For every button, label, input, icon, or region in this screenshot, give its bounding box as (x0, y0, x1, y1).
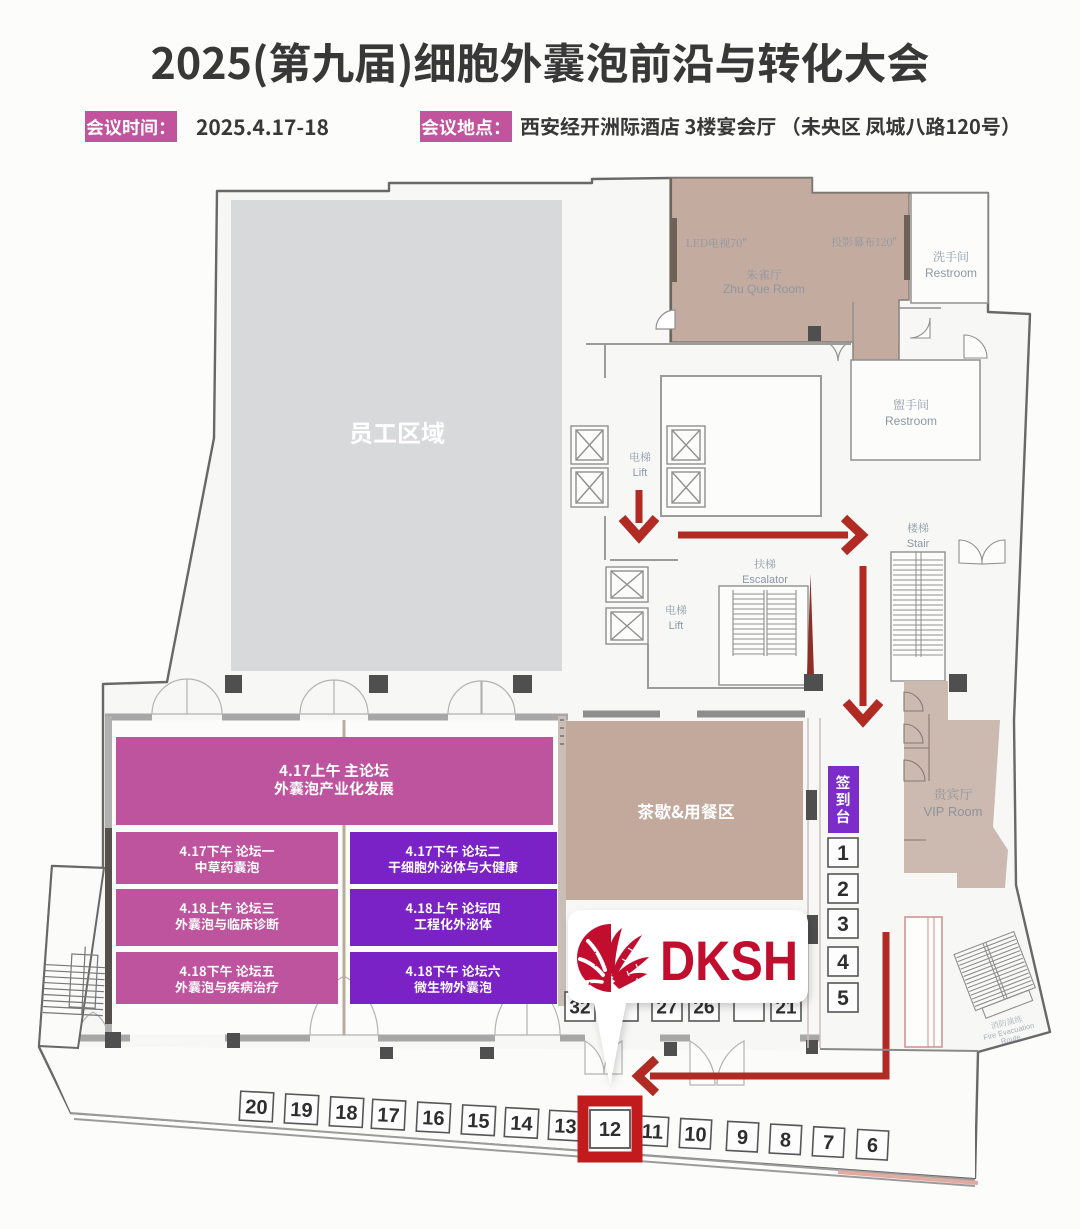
svg-text:15: 15 (467, 1110, 490, 1133)
svg-text:20: 20 (245, 1096, 268, 1119)
svg-text:6: 6 (866, 1135, 878, 1158)
svg-text:14: 14 (510, 1113, 534, 1136)
svg-text:Restroom: Restroom (885, 414, 937, 428)
svg-text:8: 8 (779, 1129, 791, 1152)
svg-text:Escalator: Escalator (742, 574, 788, 586)
svg-text:Lift: Lift (669, 620, 684, 632)
svg-text:12: 12 (599, 1119, 621, 1141)
svg-text:16: 16 (422, 1107, 445, 1130)
svg-text:17: 17 (377, 1104, 400, 1127)
svg-text:2: 2 (837, 878, 849, 901)
svg-text:Zhu Que Room: Zhu Que Room (723, 282, 805, 296)
svg-text:9: 9 (736, 1127, 748, 1150)
svg-text:DKSH: DKSH (660, 929, 798, 992)
svg-text:Lift: Lift (633, 467, 648, 479)
svg-text:1: 1 (837, 842, 849, 865)
svg-text:11: 11 (641, 1121, 663, 1144)
svg-text:Restroom: Restroom (925, 266, 977, 280)
svg-text:13: 13 (554, 1115, 577, 1138)
svg-text:3: 3 (837, 913, 849, 936)
svg-text:10: 10 (684, 1123, 707, 1146)
svg-text:7: 7 (822, 1132, 834, 1155)
svg-text:VIP Room: VIP Room (923, 804, 982, 819)
svg-text:19: 19 (290, 1099, 313, 1122)
svg-text:5: 5 (837, 987, 849, 1010)
svg-text:Stair: Stair (907, 538, 930, 550)
svg-text:18: 18 (335, 1102, 358, 1125)
svg-text:4: 4 (837, 951, 849, 974)
